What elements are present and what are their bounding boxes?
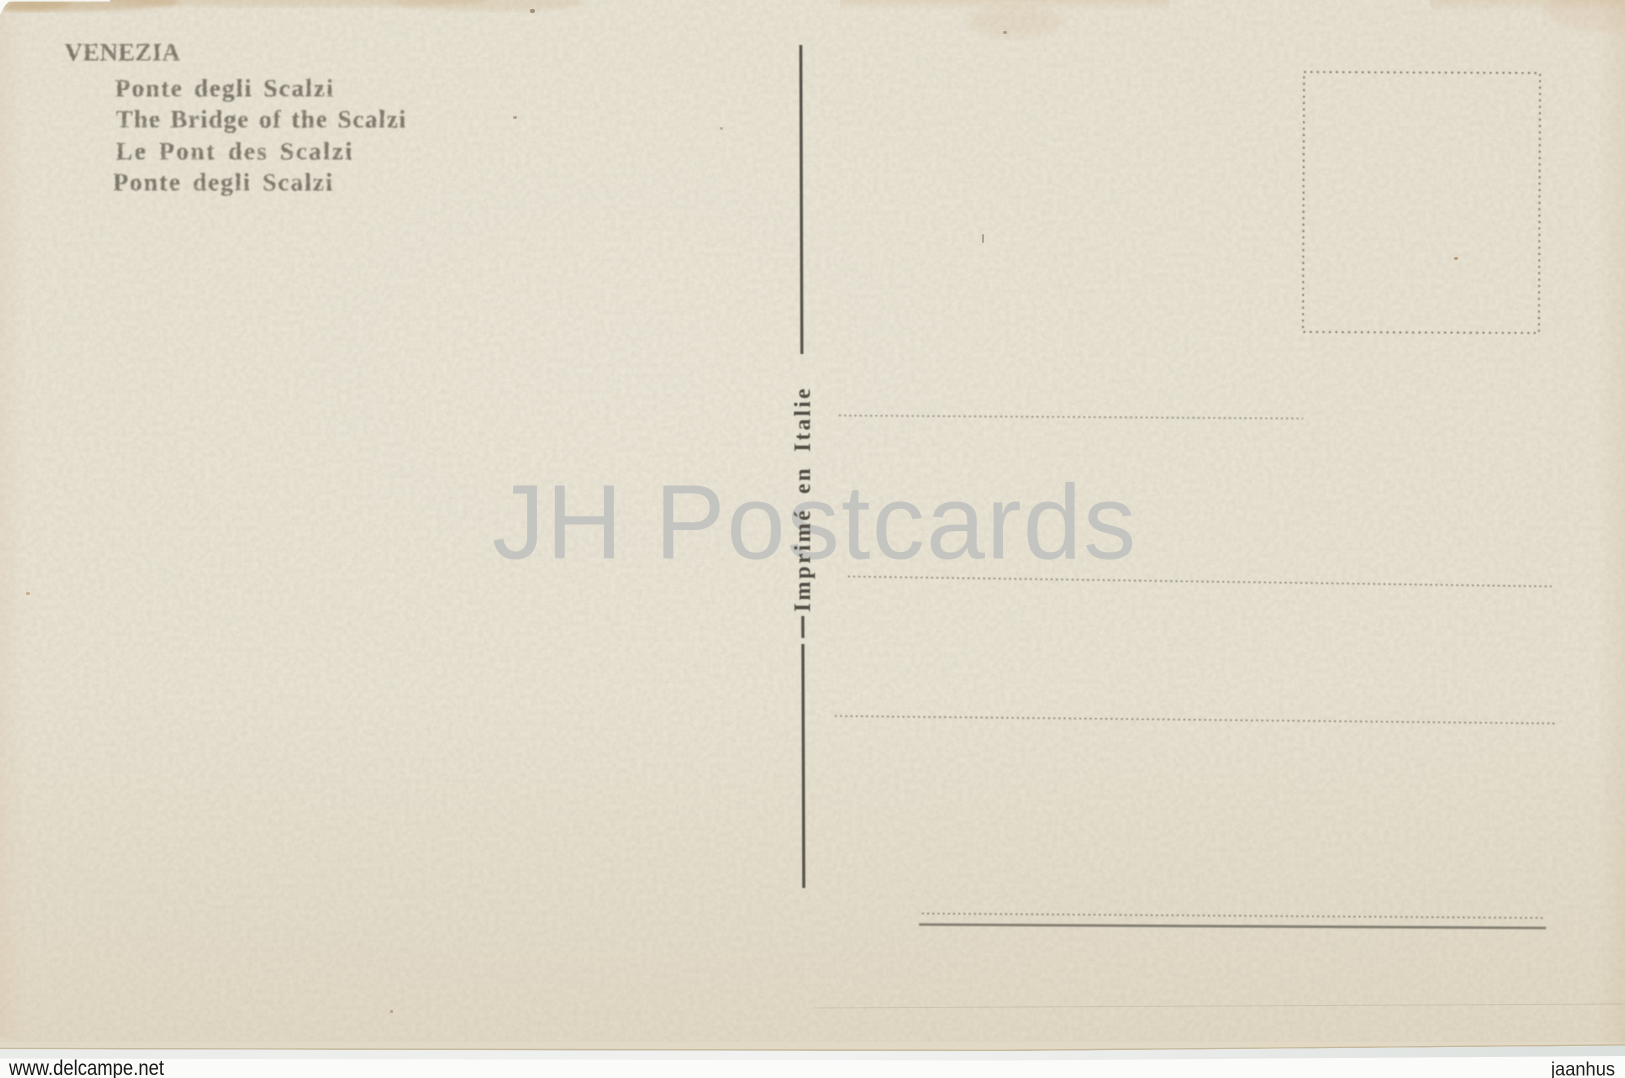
- svg-text:Ponte degli Scalzi: Ponte degli Scalzi: [115, 76, 335, 103]
- svg-text:jaanhus: jaanhus: [1550, 1059, 1615, 1078]
- svg-text:Imprimé en Italie: Imprimé en Italie: [790, 386, 815, 612]
- svg-text:VENEZIA: VENEZIA: [65, 40, 181, 67]
- svg-text:The Bridge of the Scalzi: The Bridge of the Scalzi: [116, 107, 407, 134]
- svg-text:Ponte degli Scalzi: Ponte degli Scalzi: [113, 170, 334, 197]
- svg-text:Le Pont des Scalzi: Le Pont des Scalzi: [116, 139, 354, 166]
- svg-text:www.delcampe.net: www.delcampe.net: [8, 1057, 164, 1078]
